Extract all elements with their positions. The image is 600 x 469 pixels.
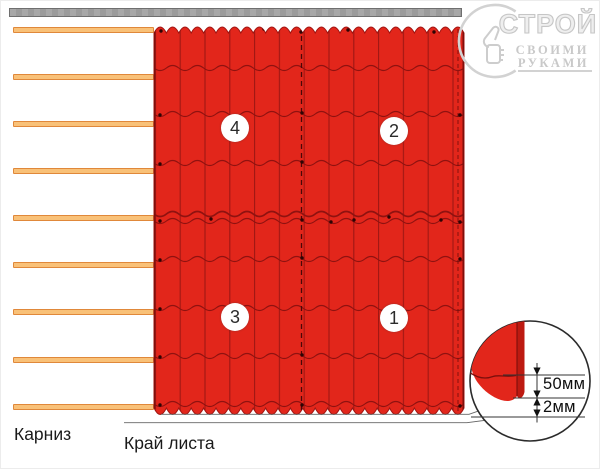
sheet-order-badge-2: 2 bbox=[380, 117, 408, 145]
gap-dimension-label: 2мм bbox=[543, 398, 576, 417]
sheet-order-badge-4: 4 bbox=[221, 114, 249, 142]
tile-sheet-field bbox=[154, 21, 464, 421]
sheet-number: 4 bbox=[230, 118, 240, 139]
sheet-number: 2 bbox=[389, 121, 399, 142]
watermark-tagline-2: РУКАМИ bbox=[498, 56, 589, 71]
sheet-order-badge-3: 3 bbox=[221, 303, 249, 331]
watermark-underline bbox=[518, 70, 592, 72]
detail-sheet-fold-edge bbox=[517, 313, 525, 398]
cornice-label: Карниз bbox=[14, 424, 71, 445]
diagram-canvas bbox=[1, 1, 600, 469]
roofing-installation-diagram: 4 2 3 1 50мм 2мм Карниз Край листа СТРОЙ… bbox=[0, 0, 600, 469]
sheet-order-badge-1: 1 bbox=[380, 304, 408, 332]
sheet-edge-label: Край листа bbox=[124, 433, 215, 454]
sheet-number: 1 bbox=[389, 308, 399, 329]
watermark-brand-name: СТРОЙ bbox=[498, 9, 598, 40]
sheet-number: 3 bbox=[230, 307, 240, 328]
overhang-dimension-label: 50мм bbox=[543, 375, 585, 394]
tile-vertical-ribs bbox=[154, 21, 464, 421]
